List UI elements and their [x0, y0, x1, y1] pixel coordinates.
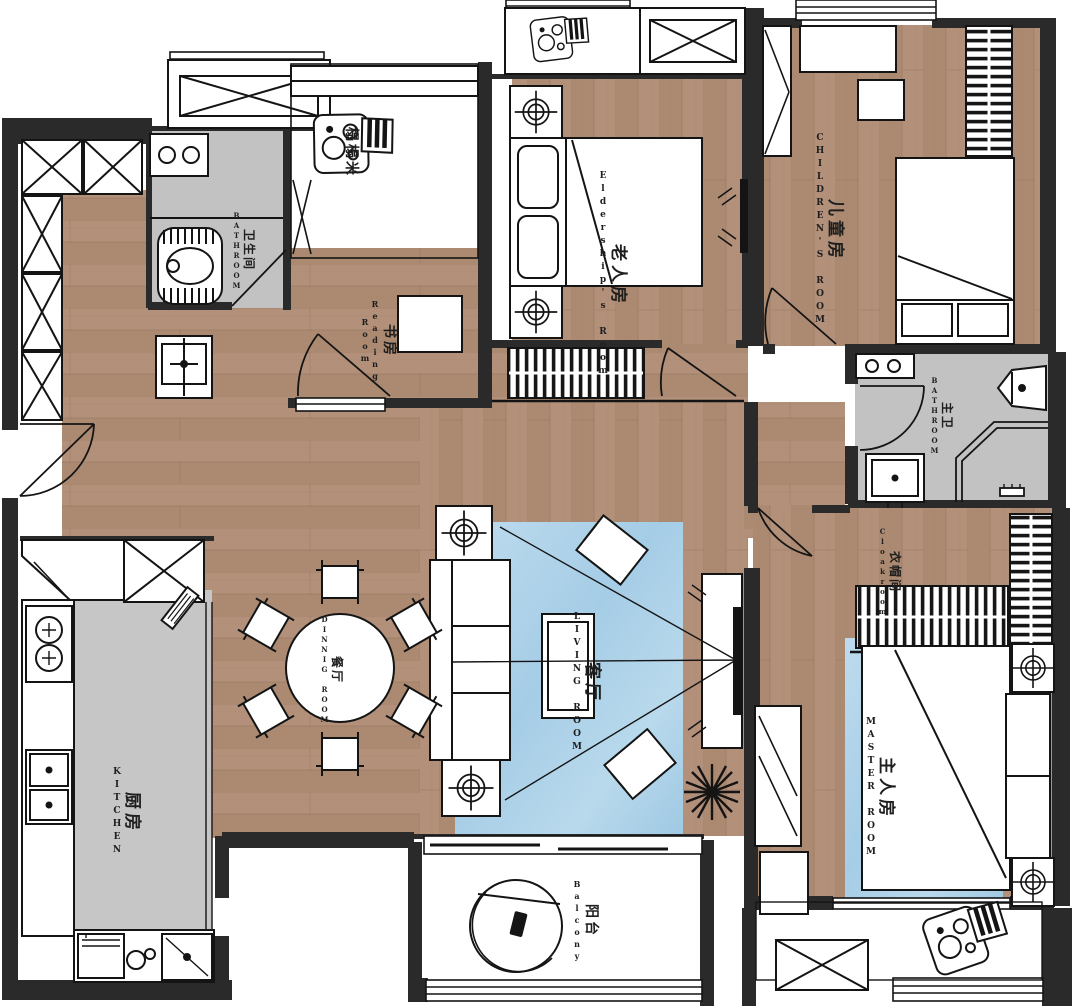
sofa [430, 560, 510, 760]
floor-plan-drawing [0, 0, 1080, 1008]
children-closet [763, 26, 791, 156]
kitchen-sink [26, 750, 72, 824]
plant [684, 764, 740, 820]
cloak-wardrobe-side [1010, 514, 1052, 648]
stove [26, 606, 72, 682]
floor-kitchen [72, 590, 212, 935]
master-dresser [760, 852, 808, 914]
dining-table [286, 614, 394, 722]
children-bed [896, 158, 1014, 344]
hanging-chair [470, 880, 562, 972]
tatami-sliding-door [293, 180, 311, 254]
tatami-room [291, 64, 478, 258]
bath-counter [856, 354, 914, 378]
master-wardrobe-mirror [755, 706, 801, 846]
kitchen-bottom-counter [74, 930, 214, 982]
window-balcony-bottom [426, 980, 702, 1001]
children-desk [800, 26, 896, 72]
sliding-door [424, 836, 702, 854]
children-chair [858, 80, 904, 120]
children-wardrobe [966, 26, 1012, 156]
window-rear-balcony-bottom [893, 978, 1043, 1001]
entry-washbasin [156, 336, 212, 398]
floor-entry-corridor [62, 190, 148, 540]
window-children-top [796, 0, 936, 20]
floor-plan: 卫生间 BATHROOM 榻榻米 书房 Reading Room 老人房 Eld… [0, 0, 1080, 1008]
washing-machine [150, 134, 208, 176]
hall-wardrobe [508, 348, 644, 398]
window-reading-bottom [296, 398, 385, 411]
elderly-top-closet [505, 8, 745, 74]
cloak-wardrobe-long [856, 586, 1008, 648]
reading-desk [398, 296, 462, 352]
coffee-table [542, 614, 594, 718]
balcony [424, 836, 702, 972]
bath-sink [866, 454, 924, 508]
elderly-bed [510, 138, 702, 286]
corner-counter [22, 540, 124, 600]
squat-toilet [158, 228, 222, 304]
ac-unit [776, 940, 868, 990]
